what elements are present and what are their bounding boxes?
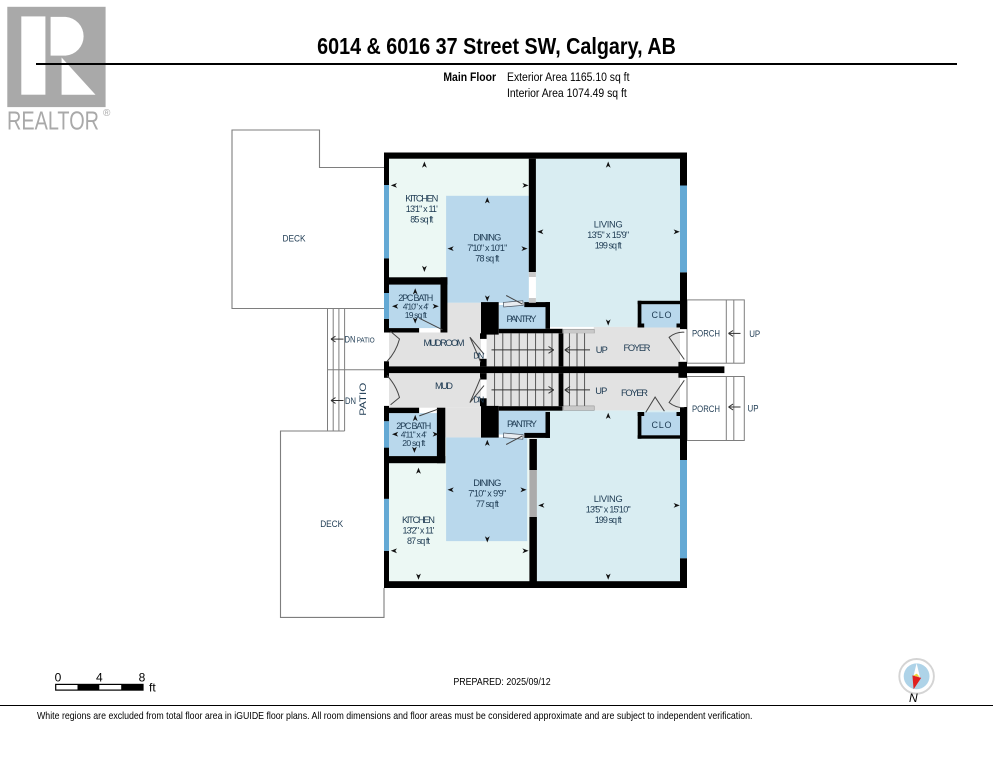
svg-text:20 sq ft: 20 sq ft <box>402 438 426 448</box>
svg-text:7'10" x 9'9": 7'10" x 9'9" <box>468 489 506 499</box>
svg-text:13'5" x 15'9": 13'5" x 15'9" <box>587 230 629 240</box>
svg-text:0: 0 <box>55 671 62 685</box>
svg-text:CLO: CLO <box>652 310 672 320</box>
svg-text:LIVING: LIVING <box>594 494 623 504</box>
svg-text:FOYER: FOYER <box>621 388 648 398</box>
svg-text:DECK: DECK <box>283 234 307 244</box>
svg-text:KITCHEN: KITCHEN <box>402 515 435 525</box>
svg-text:UP: UP <box>748 403 759 413</box>
svg-text:PORCH: PORCH <box>692 329 720 339</box>
svg-text:199 sq ft: 199 sq ft <box>595 515 622 525</box>
svg-text:87 sq ft: 87 sq ft <box>407 536 430 546</box>
svg-text:PANTRY: PANTRY <box>507 419 537 429</box>
svg-text:CLO: CLO <box>652 420 672 430</box>
svg-text:UP: UP <box>596 345 608 355</box>
svg-text:7'10" x 10'1": 7'10" x 10'1" <box>467 243 507 253</box>
svg-text:19 sq ft: 19 sq ft <box>405 310 428 320</box>
svg-text:PORCH: PORCH <box>692 404 720 414</box>
svg-text:DN: DN <box>473 351 484 361</box>
svg-text:LIVING: LIVING <box>594 220 623 230</box>
svg-text:UP: UP <box>749 329 760 339</box>
svg-text:PATIO: PATIO <box>358 383 368 416</box>
svg-text:DN: DN <box>345 335 356 345</box>
svg-text:78 sq ft: 78 sq ft <box>475 254 499 264</box>
svg-text:13'2" x 11': 13'2" x 11' <box>403 526 435 536</box>
svg-text:KITCHEN: KITCHEN <box>405 194 438 204</box>
svg-text:DN: DN <box>473 395 484 405</box>
svg-text:13'1" x 11': 13'1" x 11' <box>406 204 438 214</box>
svg-text:DN: DN <box>345 396 356 406</box>
svg-text:13'5" x 15'10": 13'5" x 15'10" <box>586 505 631 515</box>
svg-text:PANTRY: PANTRY <box>507 314 537 324</box>
svg-text:DINING: DINING <box>473 233 501 243</box>
svg-text:85 sq ft: 85 sq ft <box>410 215 433 225</box>
svg-text:77 sq ft: 77 sq ft <box>476 499 499 509</box>
svg-text:DINING: DINING <box>473 478 501 488</box>
svg-text:N: N <box>909 691 918 705</box>
svg-text:DECK: DECK <box>320 519 344 529</box>
svg-text:UP: UP <box>595 386 607 396</box>
svg-text:199 sq ft: 199 sq ft <box>595 241 622 251</box>
svg-text:FOYER: FOYER <box>624 343 651 353</box>
svg-text:PATIO: PATIO <box>357 335 375 344</box>
svg-text:MUDROOM: MUDROOM <box>424 338 465 348</box>
svg-text:MUD: MUD <box>435 381 453 391</box>
